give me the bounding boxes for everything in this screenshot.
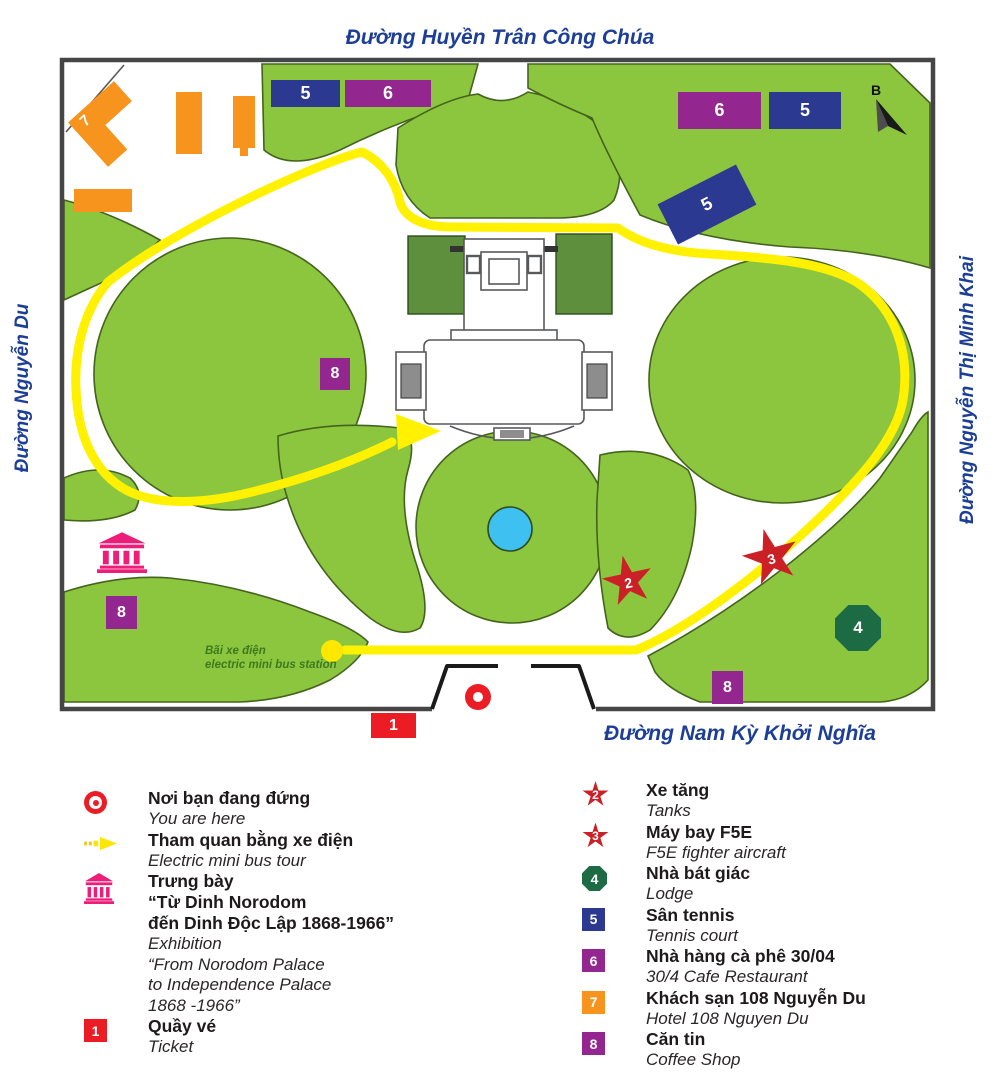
- legend-line-vi: đến Dinh Độc Lập 1868-1966”: [148, 913, 394, 934]
- legend-text: Nhà hàng cà phê 30/0430/4 Cafe Restauran…: [646, 946, 835, 988]
- legend-icon-cell: 8: [576, 1030, 646, 1055]
- octagon-4-icon: 4: [582, 866, 607, 891]
- legend-item: 2Xe tăngTanks: [576, 780, 996, 822]
- star-3-icon: 3: [582, 823, 609, 850]
- legend-icon-cell: [78, 831, 148, 856]
- legend-line-en: to Independence Palace: [148, 975, 394, 996]
- you-are-here-icon: [84, 791, 107, 814]
- legend-line-en: “From Norodom Palace: [148, 955, 394, 976]
- compass-label: B: [871, 82, 881, 98]
- legend-item: 3Máy bay F5EF5E fighter aircraft: [576, 822, 996, 864]
- legend-line-en: Exhibition: [148, 934, 394, 955]
- park-map: B: [0, 0, 1000, 760]
- legend-text: Quầy véTicket: [148, 1016, 216, 1058]
- legend-text: Tham quan bằng xe điệnElectric mini bus …: [148, 830, 353, 872]
- independence-palace-map-page: Đường Huyền Trân Công Chúa Đường Nguyễn …: [0, 0, 1000, 1084]
- legend-line-en: F5E fighter aircraft: [646, 843, 786, 864]
- legend-line-en: Tennis court: [646, 926, 738, 947]
- legend-icon-cell: 3: [576, 823, 646, 850]
- legend-text: Xe tăngTanks: [646, 780, 709, 822]
- legend-line-en: Hotel 108 Nguyen Du: [646, 1009, 866, 1030]
- legend-icon-cell: [78, 872, 148, 909]
- legend-line-en: You are here: [148, 809, 310, 830]
- legend-line-vi: Căn tin: [646, 1029, 741, 1050]
- museum-icon: [97, 531, 147, 573]
- legend-text: Máy bay F5EF5E fighter aircraft: [646, 822, 786, 864]
- legend-icon-cell: 6: [576, 947, 646, 972]
- bus-station-caption: Bãi xe điện electric mini bus station: [205, 645, 337, 672]
- square-5-icon: 5: [582, 908, 605, 931]
- legend-line-en: 30/4 Cafe Restaurant: [646, 967, 835, 988]
- legend-text: Sân tennisTennis court: [646, 905, 738, 947]
- square-8-icon: 8: [582, 1032, 605, 1055]
- legend-text: Căn tinCoffee Shop: [646, 1029, 741, 1071]
- legend-item: 6Nhà hàng cà phê 30/0430/4 Cafe Restaura…: [576, 946, 996, 988]
- legend-column-right: 2Xe tăngTanks3Máy bay F5EF5E fighter air…: [576, 780, 996, 1071]
- legend-icon-label: 5: [582, 908, 605, 931]
- legend-line-en: Coffee Shop: [646, 1050, 741, 1071]
- legend-icon-label: 2: [582, 781, 609, 808]
- legend-item: 1Quầy véTicket: [78, 1016, 508, 1058]
- bus-station-caption-en: electric mini bus station: [205, 659, 337, 673]
- legend-text: Nơi bạn đang đứngYou are here: [148, 788, 310, 830]
- legend-item: Tham quan bằng xe điệnElectric mini bus …: [78, 830, 508, 872]
- legend-line-vi: Máy bay F5E: [646, 822, 786, 843]
- legend-text: Trưng bày“Từ Dinh Norodomđến Dinh Độc Lậ…: [148, 871, 394, 1016]
- legend-line-vi: Sân tennis: [646, 905, 738, 926]
- legend-line-vi: Trưng bày: [148, 871, 394, 892]
- legend-line-vi: Nhà hàng cà phê 30/04: [646, 946, 835, 967]
- legend-line-vi: Nơi bạn đang đứng: [148, 788, 310, 809]
- legend-item: 4Nhà bát giácLodge: [576, 863, 996, 905]
- legend-item: 5Sân tennisTennis court: [576, 905, 996, 947]
- legend-line-en: 1868 -1966”: [148, 996, 394, 1017]
- fountain-pond: [488, 507, 532, 551]
- legend-line-vi: Xe tăng: [646, 780, 709, 801]
- museum-icon: [84, 872, 114, 909]
- legend-line-en: Ticket: [148, 1037, 216, 1058]
- legend-icon-label: 3: [582, 823, 609, 850]
- legend-icon-label: 1: [84, 1019, 107, 1042]
- legend-text: Khách sạn 108 Nguyễn DuHotel 108 Nguyen …: [646, 988, 866, 1030]
- legend-line-en: Tanks: [646, 801, 709, 822]
- legend-column-left: Nơi bạn đang đứngYou are hereTham quan b…: [78, 788, 508, 1058]
- bus-route-arrow-icon: [84, 831, 118, 856]
- legend-line-vi: “Từ Dinh Norodom: [148, 892, 394, 913]
- legend-icon-cell: 2: [576, 781, 646, 808]
- legend-icon-cell: [78, 789, 148, 814]
- legend-text: Nhà bát giácLodge: [646, 863, 750, 905]
- legend-line-vi: Tham quan bằng xe điện: [148, 830, 353, 851]
- star-2-icon: 2: [582, 781, 609, 808]
- legend-item: Trưng bày“Từ Dinh Norodomđến Dinh Độc Lậ…: [78, 871, 508, 1016]
- square-7-icon: 7: [582, 991, 605, 1014]
- legend-icon-label: 7: [582, 991, 605, 1014]
- legend-line-en: Electric mini bus tour: [148, 851, 353, 872]
- square-6-icon: 6: [582, 949, 605, 972]
- legend-item: 8Căn tinCoffee Shop: [576, 1029, 996, 1071]
- legend-line-vi: Nhà bát giác: [646, 863, 750, 884]
- legend-icon-label: 8: [582, 1032, 605, 1055]
- legend-item: Nơi bạn đang đứngYou are here: [78, 788, 508, 830]
- legend-icon-label: 6: [582, 949, 605, 972]
- bus-station-caption-vi: Bãi xe điện: [205, 645, 337, 659]
- legend-icon-label: 4: [582, 866, 607, 891]
- legend-icon-cell: 1: [78, 1017, 148, 1042]
- you-are-here-dot: [465, 684, 491, 710]
- legend-line-vi: Quầy vé: [148, 1016, 216, 1037]
- legend-line-en: Lodge: [646, 884, 750, 905]
- legend-icon-cell: 5: [576, 906, 646, 931]
- legend-icon-cell: 4: [576, 864, 646, 891]
- square-1-icon: 1: [84, 1019, 107, 1042]
- legend-icon-cell: 7: [576, 989, 646, 1014]
- legend-item: 7Khách sạn 108 Nguyễn DuHotel 108 Nguyen…: [576, 988, 996, 1030]
- legend-line-vi: Khách sạn 108 Nguyễn Du: [646, 988, 866, 1009]
